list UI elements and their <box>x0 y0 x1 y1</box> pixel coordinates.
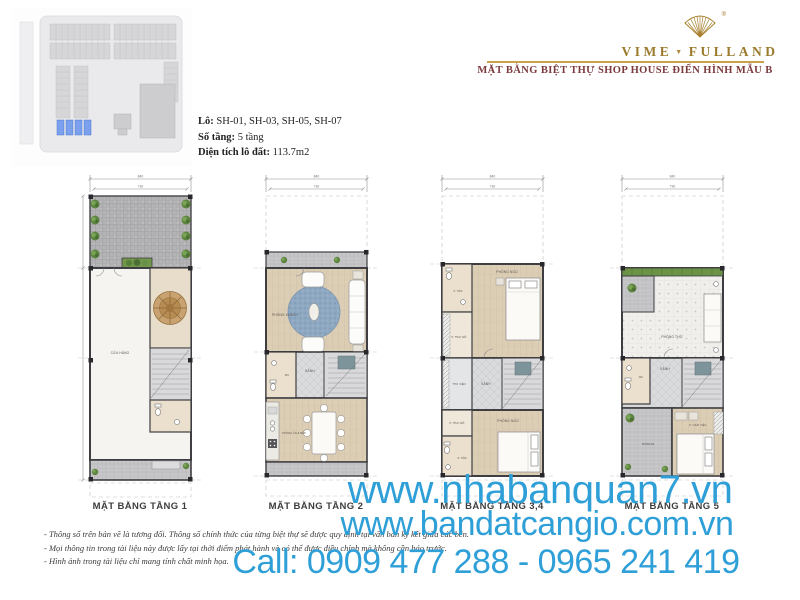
svg-text:840: 840 <box>490 175 496 179</box>
plan-label-floor-1: MẶT BẰNG TẦNG 1 <box>55 501 225 512</box>
dressing-room: P. THAY ĐỒ <box>442 410 472 436</box>
watermark-url-2: www.bandatcangio.com.vn <box>341 505 734 544</box>
floor-plan-3-4-drawing: 840 730 P. TẮM P. THAY ĐỒ PHÒNG NGỦ <box>430 172 555 502</box>
brochure-page: Lô: SH-01, SH-03, SH-05, SH-07 Số tầng: … <box>0 0 800 600</box>
room-label-hall: SẢNH <box>305 368 315 373</box>
room-label-wc: WC <box>285 374 290 377</box>
room-label-bedroom: PHÒNG NGỦ <box>497 418 519 423</box>
dimension-lines: 840 730 <box>265 175 369 192</box>
kitchen-counter <box>266 402 279 460</box>
terrace-and-maid-room: TERRACE P. GIÚP VIỆC <box>622 408 723 476</box>
lot-value: SH-01, SH-03, SH-05, SH-07 <box>214 116 342 127</box>
vimefulland-fan-icon: ® <box>682 12 718 43</box>
stairs <box>502 358 543 410</box>
dressing-room: P. THAY ĐỒ <box>442 312 472 358</box>
front-balcony <box>266 252 367 268</box>
worship-room: PHÒNG THỜ <box>622 268 723 358</box>
library: THƯ VIỆN <box>442 358 472 410</box>
room-label-terrace: TERRACE <box>642 443 655 446</box>
area-line: Diện tích lô đất: 113.7m2 <box>198 145 342 161</box>
svg-text:840: 840 <box>670 175 676 179</box>
floors-value: 5 tầng <box>235 132 264 143</box>
room-label-bedroom: PHÒNG NGỦ <box>496 269 518 274</box>
site-plan-map <box>12 8 192 166</box>
lower-bedroom-suite: P. THAY ĐỒ P. TẮM PHÒNG NGỦ <box>442 410 543 476</box>
area-label: Diện tích lô đất: <box>198 147 270 158</box>
bed <box>498 432 540 472</box>
wc <box>150 400 191 432</box>
wc: WC <box>622 358 650 404</box>
property-info: Lô: SH-01, SH-03, SH-05, SH-07 Số tầng: … <box>198 114 342 161</box>
room-label-shop: CỬA HÀNG <box>111 350 130 355</box>
lot-line: Lô: SH-01, SH-03, SH-05, SH-07 <box>198 114 342 130</box>
wc: WC <box>266 352 296 398</box>
floor-plan-1-drawing: 840 730 CỬA HÀNG <box>78 172 203 502</box>
room-label-dining: PHÒNG ĂN & BẾP <box>282 432 306 435</box>
lot-label: Lô: <box>198 116 214 127</box>
area-value: 113.7m2 <box>270 147 309 158</box>
setback-boundary <box>266 196 367 252</box>
dining-kitchen: PHÒNG ĂN & BẾP <box>266 398 367 462</box>
room-label-bath: P. TẮM <box>458 457 467 460</box>
maid-room: P. GIÚP VIỆC <box>672 408 723 476</box>
brand-name: VIME▼FULLAND <box>560 44 800 60</box>
upper-bedroom-suite: P. TẮM P. THAY ĐỒ PHÒNG NGỦ <box>442 264 543 358</box>
hall-landing: THƯ VIỆN SẢNH <box>442 358 543 410</box>
stairs <box>324 352 367 398</box>
hall-landing: WC SẢNH <box>266 352 367 398</box>
room-label-wc: WC <box>639 376 644 379</box>
room-label-living: PHÒNG KHÁCH <box>272 312 298 317</box>
svg-text:730: 730 <box>314 185 320 189</box>
living-room: PHÒNG KHÁCH <box>266 268 367 353</box>
dimension-lines: 840 730 <box>441 175 545 192</box>
armchair <box>302 272 324 287</box>
room-label-worship: PHÒNG THỜ <box>661 334 682 339</box>
terrace: TERRACE <box>622 408 672 476</box>
floor-plan-5-drawing: 840 730 PHÒNG THỜ <box>610 172 735 502</box>
setback-boundary <box>442 196 543 264</box>
shop-floor: CỬA HÀNG <box>90 268 191 460</box>
hall-landing: WC SẢNH <box>622 358 723 408</box>
stairs <box>682 358 723 408</box>
dining-table <box>312 412 336 454</box>
room-label-dressing: P. THAY ĐỒ <box>451 336 466 339</box>
brand-diamond-icon: ▼ <box>675 48 685 56</box>
brand-right: FULLAND <box>689 44 779 59</box>
corner-terrace <box>622 276 654 312</box>
green-hedge <box>622 268 723 276</box>
brand-left: VIME <box>622 44 673 59</box>
floors-label: Số tầng: <box>198 132 235 143</box>
svg-text:730: 730 <box>138 185 144 189</box>
foyer-circle-floor <box>150 268 191 348</box>
svg-text:840: 840 <box>138 175 144 179</box>
bathroom: P. TẮM <box>442 264 472 312</box>
registered-mark: ® <box>722 12 726 18</box>
svg-text:730: 730 <box>490 185 496 189</box>
floor-plan-2-drawing: 840 730 PHÒNG KHÁCH <box>254 172 379 502</box>
room-label-hall: SẢNH <box>481 381 491 386</box>
room-label-maid: P. GIÚP VIỆC <box>689 424 706 427</box>
header-divider <box>487 61 764 63</box>
armchair <box>302 337 324 352</box>
room-label-library: THƯ VIỆN <box>452 383 465 386</box>
dimension-lines: 840 730 <box>621 175 725 192</box>
page-title: MẶT BẰNG BIỆT THỰ SHOP HOUSE ĐIỂN HÌNH M… <box>452 65 798 76</box>
sidewalk-outline <box>90 483 191 497</box>
front-yard <box>90 196 191 268</box>
room-label-bath: P. TẮM <box>454 290 463 293</box>
watermark-phone: Call: 0909 477 288 - 0965 241 419 <box>232 543 739 582</box>
room-label-dressing: P. THAY ĐỒ <box>449 422 464 425</box>
altar-cabinet <box>704 294 721 342</box>
svg-text:730: 730 <box>670 185 676 189</box>
brand-logo: ® VIME▼FULLAND <box>560 12 800 60</box>
floors-line: Số tầng: 5 tầng <box>198 130 342 146</box>
svg-text:840: 840 <box>314 175 320 179</box>
stairs <box>150 348 191 400</box>
back-yard <box>90 460 191 480</box>
setback-boundary <box>622 196 723 268</box>
room-label-hall: SẢNH <box>660 366 670 371</box>
site-road-strip <box>20 22 33 144</box>
